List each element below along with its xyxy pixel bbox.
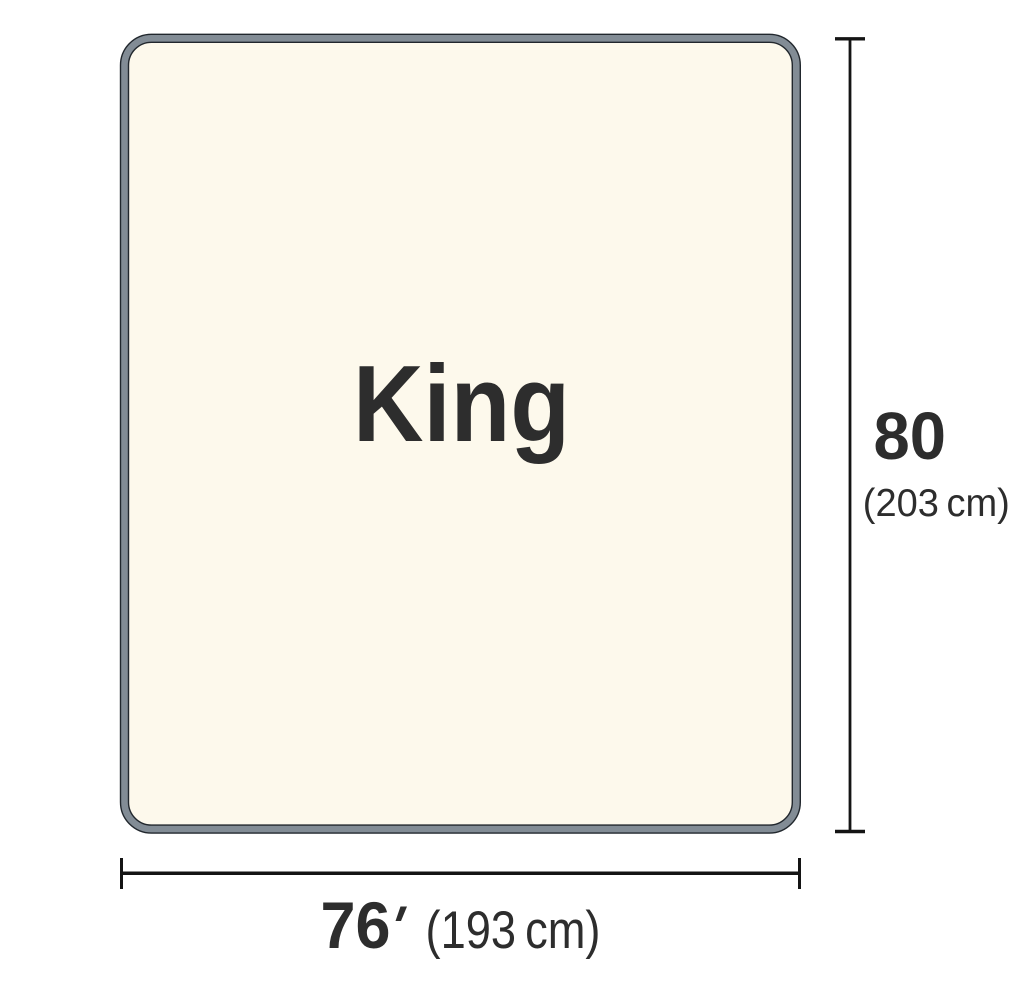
svg-text:76: 76 <box>321 888 391 962</box>
svg-text:(203 cm): (203 cm) <box>863 482 1010 525</box>
svg-text:King: King <box>353 343 570 465</box>
svg-text:80: 80 <box>874 399 947 474</box>
svg-text:(193 cm): (193 cm) <box>426 901 601 960</box>
